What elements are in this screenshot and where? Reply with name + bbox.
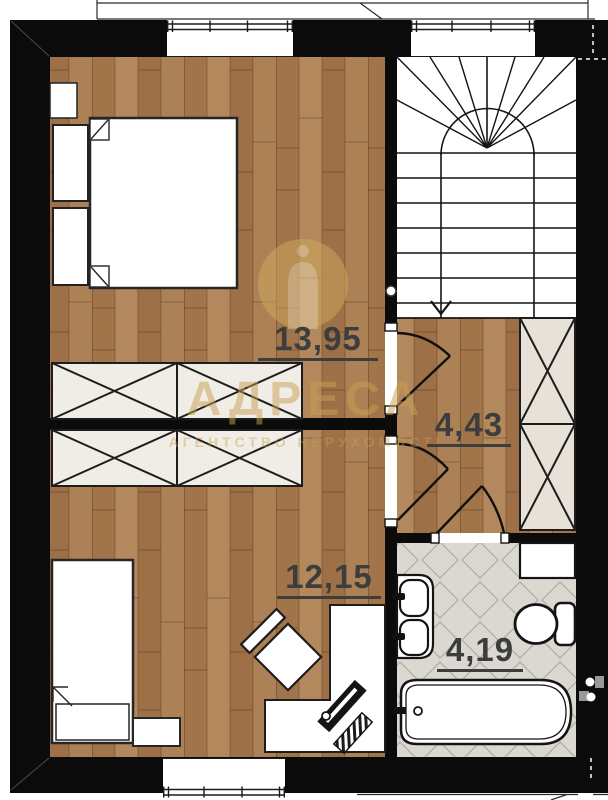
wall-bottom xyxy=(10,757,608,793)
toilet xyxy=(515,603,575,645)
double-bed xyxy=(90,118,237,288)
lower-floor-outline xyxy=(357,795,608,800)
wall-left xyxy=(10,20,50,793)
double-sink xyxy=(392,575,433,658)
single-bed xyxy=(52,560,133,743)
area-label-bedroom-lower: 12,15 xyxy=(277,560,381,599)
upper-floor-outline xyxy=(97,0,595,19)
area-label-hallway: 4,43 xyxy=(427,408,511,447)
wardrobe-hallway xyxy=(520,318,575,530)
floor-plan-drawing xyxy=(0,0,608,800)
area-label-bathroom: 4,19 xyxy=(437,633,523,672)
wardrobe-bedroom-lower xyxy=(52,430,302,486)
wardrobe-bedroom-upper xyxy=(52,363,302,419)
washing-machine xyxy=(520,543,575,578)
wall-niche xyxy=(50,83,77,118)
bathtub xyxy=(394,680,571,744)
nightstand-bottom xyxy=(53,208,88,285)
window-top-left xyxy=(167,20,293,57)
window-bottom xyxy=(163,758,285,798)
mouse xyxy=(322,712,330,720)
faucet xyxy=(392,633,405,640)
faucet xyxy=(392,593,405,600)
area-label-bedroom-upper: 13,95 xyxy=(258,322,378,361)
tub-faucet xyxy=(394,707,406,714)
tub-drain xyxy=(414,707,422,715)
window-top-right xyxy=(411,20,535,57)
floor-plan: АДРЕСА АГЕНТСТВО НЕРУХОМОСТІ 13,95 4,43 … xyxy=(0,0,608,800)
bedside-table xyxy=(133,718,180,746)
riser-dot xyxy=(386,286,396,296)
nightstand-top xyxy=(53,125,88,201)
